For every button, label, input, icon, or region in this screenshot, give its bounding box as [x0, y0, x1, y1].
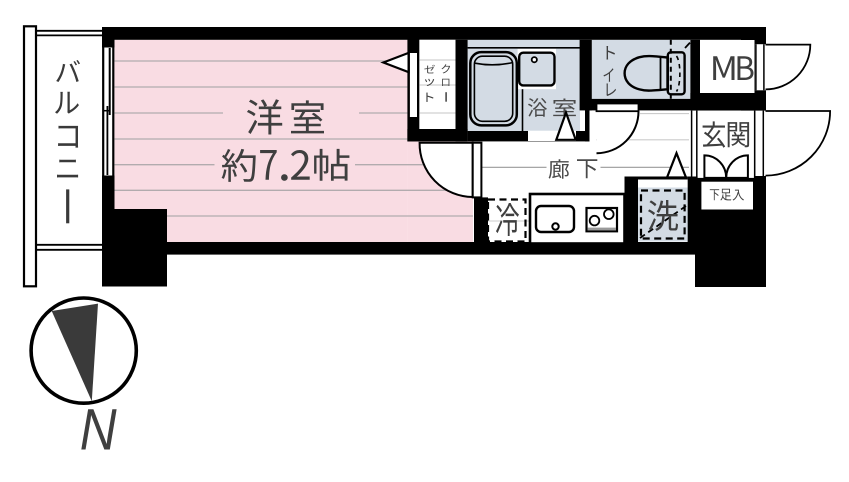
- svg-text:N: N: [80, 397, 117, 462]
